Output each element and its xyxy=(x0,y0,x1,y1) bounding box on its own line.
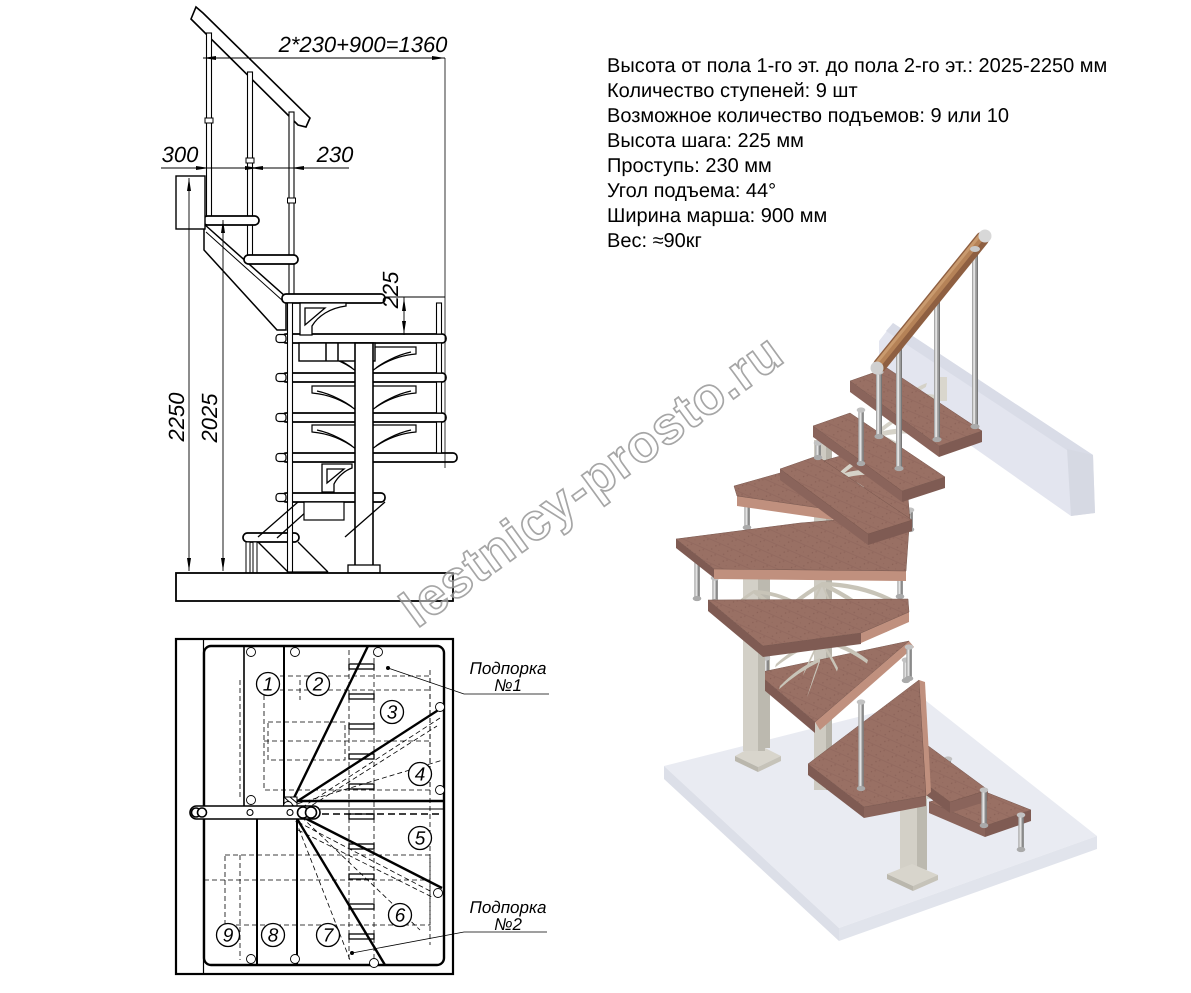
svg-text:2*230+900=1360: 2*230+900=1360 xyxy=(278,32,449,57)
svg-text:Угол подъема: 44°: Угол подъема: 44° xyxy=(607,180,776,202)
svg-text:Количество ступеней: 9 шт: Количество ступеней: 9 шт xyxy=(607,80,858,102)
svg-text:225: 225 xyxy=(378,271,403,309)
svg-text:1: 1 xyxy=(263,675,274,696)
svg-text:6: 6 xyxy=(395,906,406,927)
svg-text:Возможное количество подъемов:: Возможное количество подъемов: 9 или 10 xyxy=(607,105,1009,127)
svg-text:2: 2 xyxy=(312,675,324,696)
svg-text:5: 5 xyxy=(415,829,426,850)
svg-text:2025: 2025 xyxy=(197,393,222,444)
svg-text:3: 3 xyxy=(387,703,398,724)
svg-text:№1: №1 xyxy=(494,676,522,695)
svg-text:Высота от пола 1-го эт. до пол: Высота от пола 1-го эт. до пола 2-го эт.… xyxy=(607,55,1107,77)
svg-text:Вес: ≈90кг: Вес: ≈90кг xyxy=(607,230,702,252)
svg-text:7: 7 xyxy=(323,926,335,947)
svg-text:9: 9 xyxy=(223,926,234,947)
svg-text:8: 8 xyxy=(268,926,279,947)
svg-text:№2: №2 xyxy=(494,915,522,934)
svg-text:Ширина марша: 900 мм: Ширина марша: 900 мм xyxy=(607,205,827,227)
svg-text:lestnicy-prosto.ru: lestnicy-prosto.ru xyxy=(390,323,794,639)
svg-text:4: 4 xyxy=(415,765,426,786)
svg-text:Высота шага: 225 мм: Высота шага: 225 мм xyxy=(607,130,804,152)
svg-text:2250: 2250 xyxy=(164,392,189,443)
svg-text:Проступь: 230 мм: Проступь: 230 мм xyxy=(607,155,772,177)
svg-text:300: 300 xyxy=(162,142,199,167)
svg-text:230: 230 xyxy=(316,142,354,167)
